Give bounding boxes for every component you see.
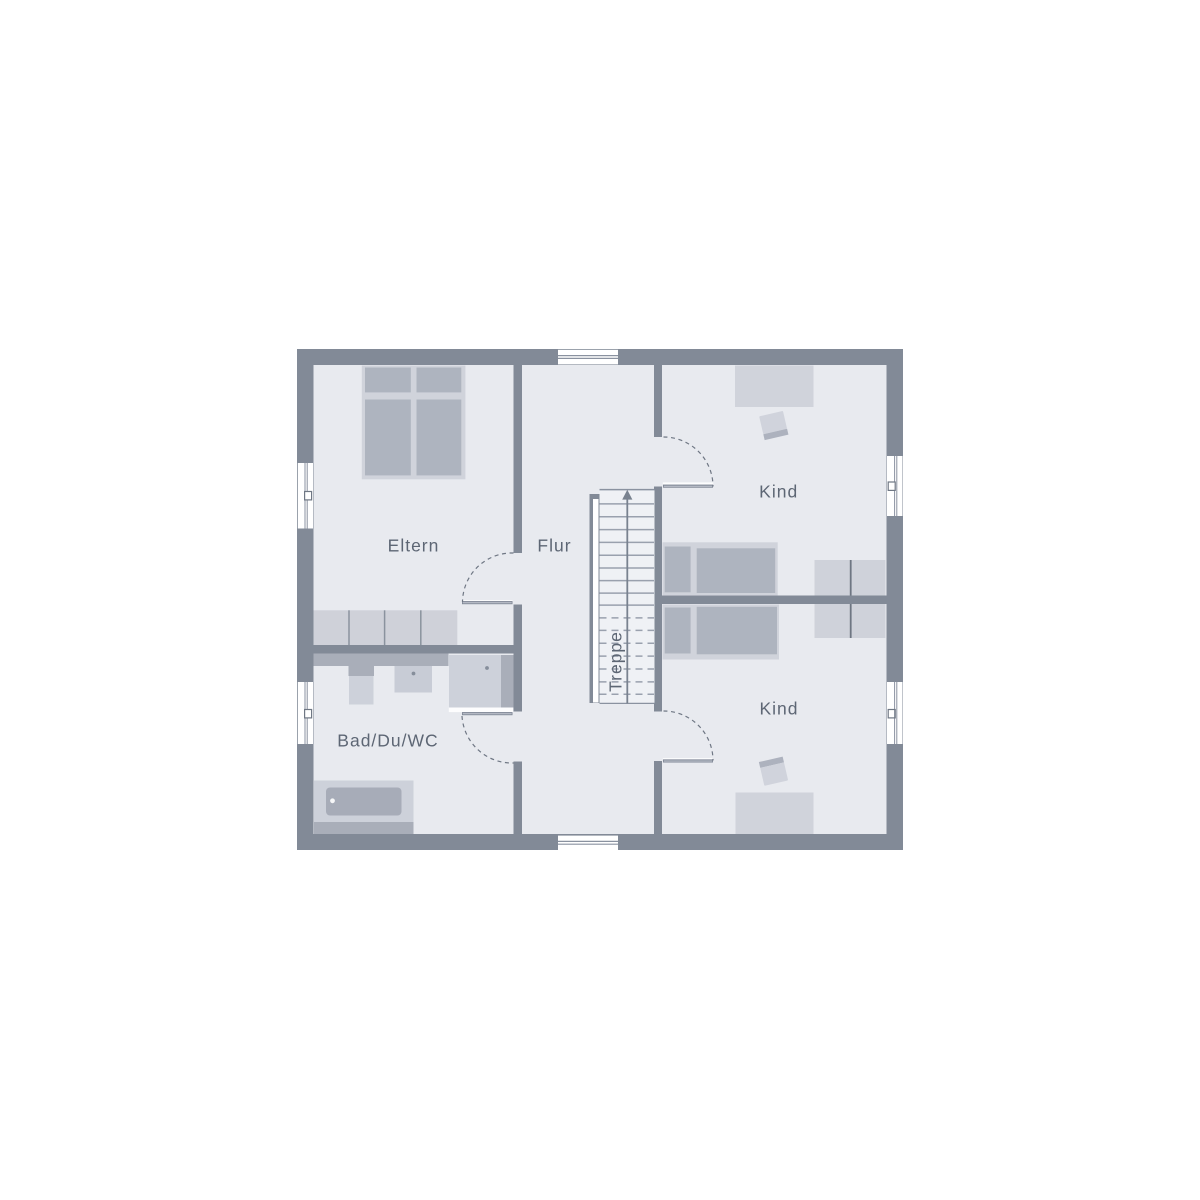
svg-text:Treppe: Treppe	[606, 631, 626, 692]
svg-text:Bad/Du/WC: Bad/Du/WC	[337, 731, 438, 751]
svg-text:Kind: Kind	[759, 482, 798, 502]
svg-text:Eltern: Eltern	[388, 536, 440, 556]
svg-text:Kind: Kind	[759, 699, 798, 719]
svg-text:Flur: Flur	[537, 536, 571, 556]
